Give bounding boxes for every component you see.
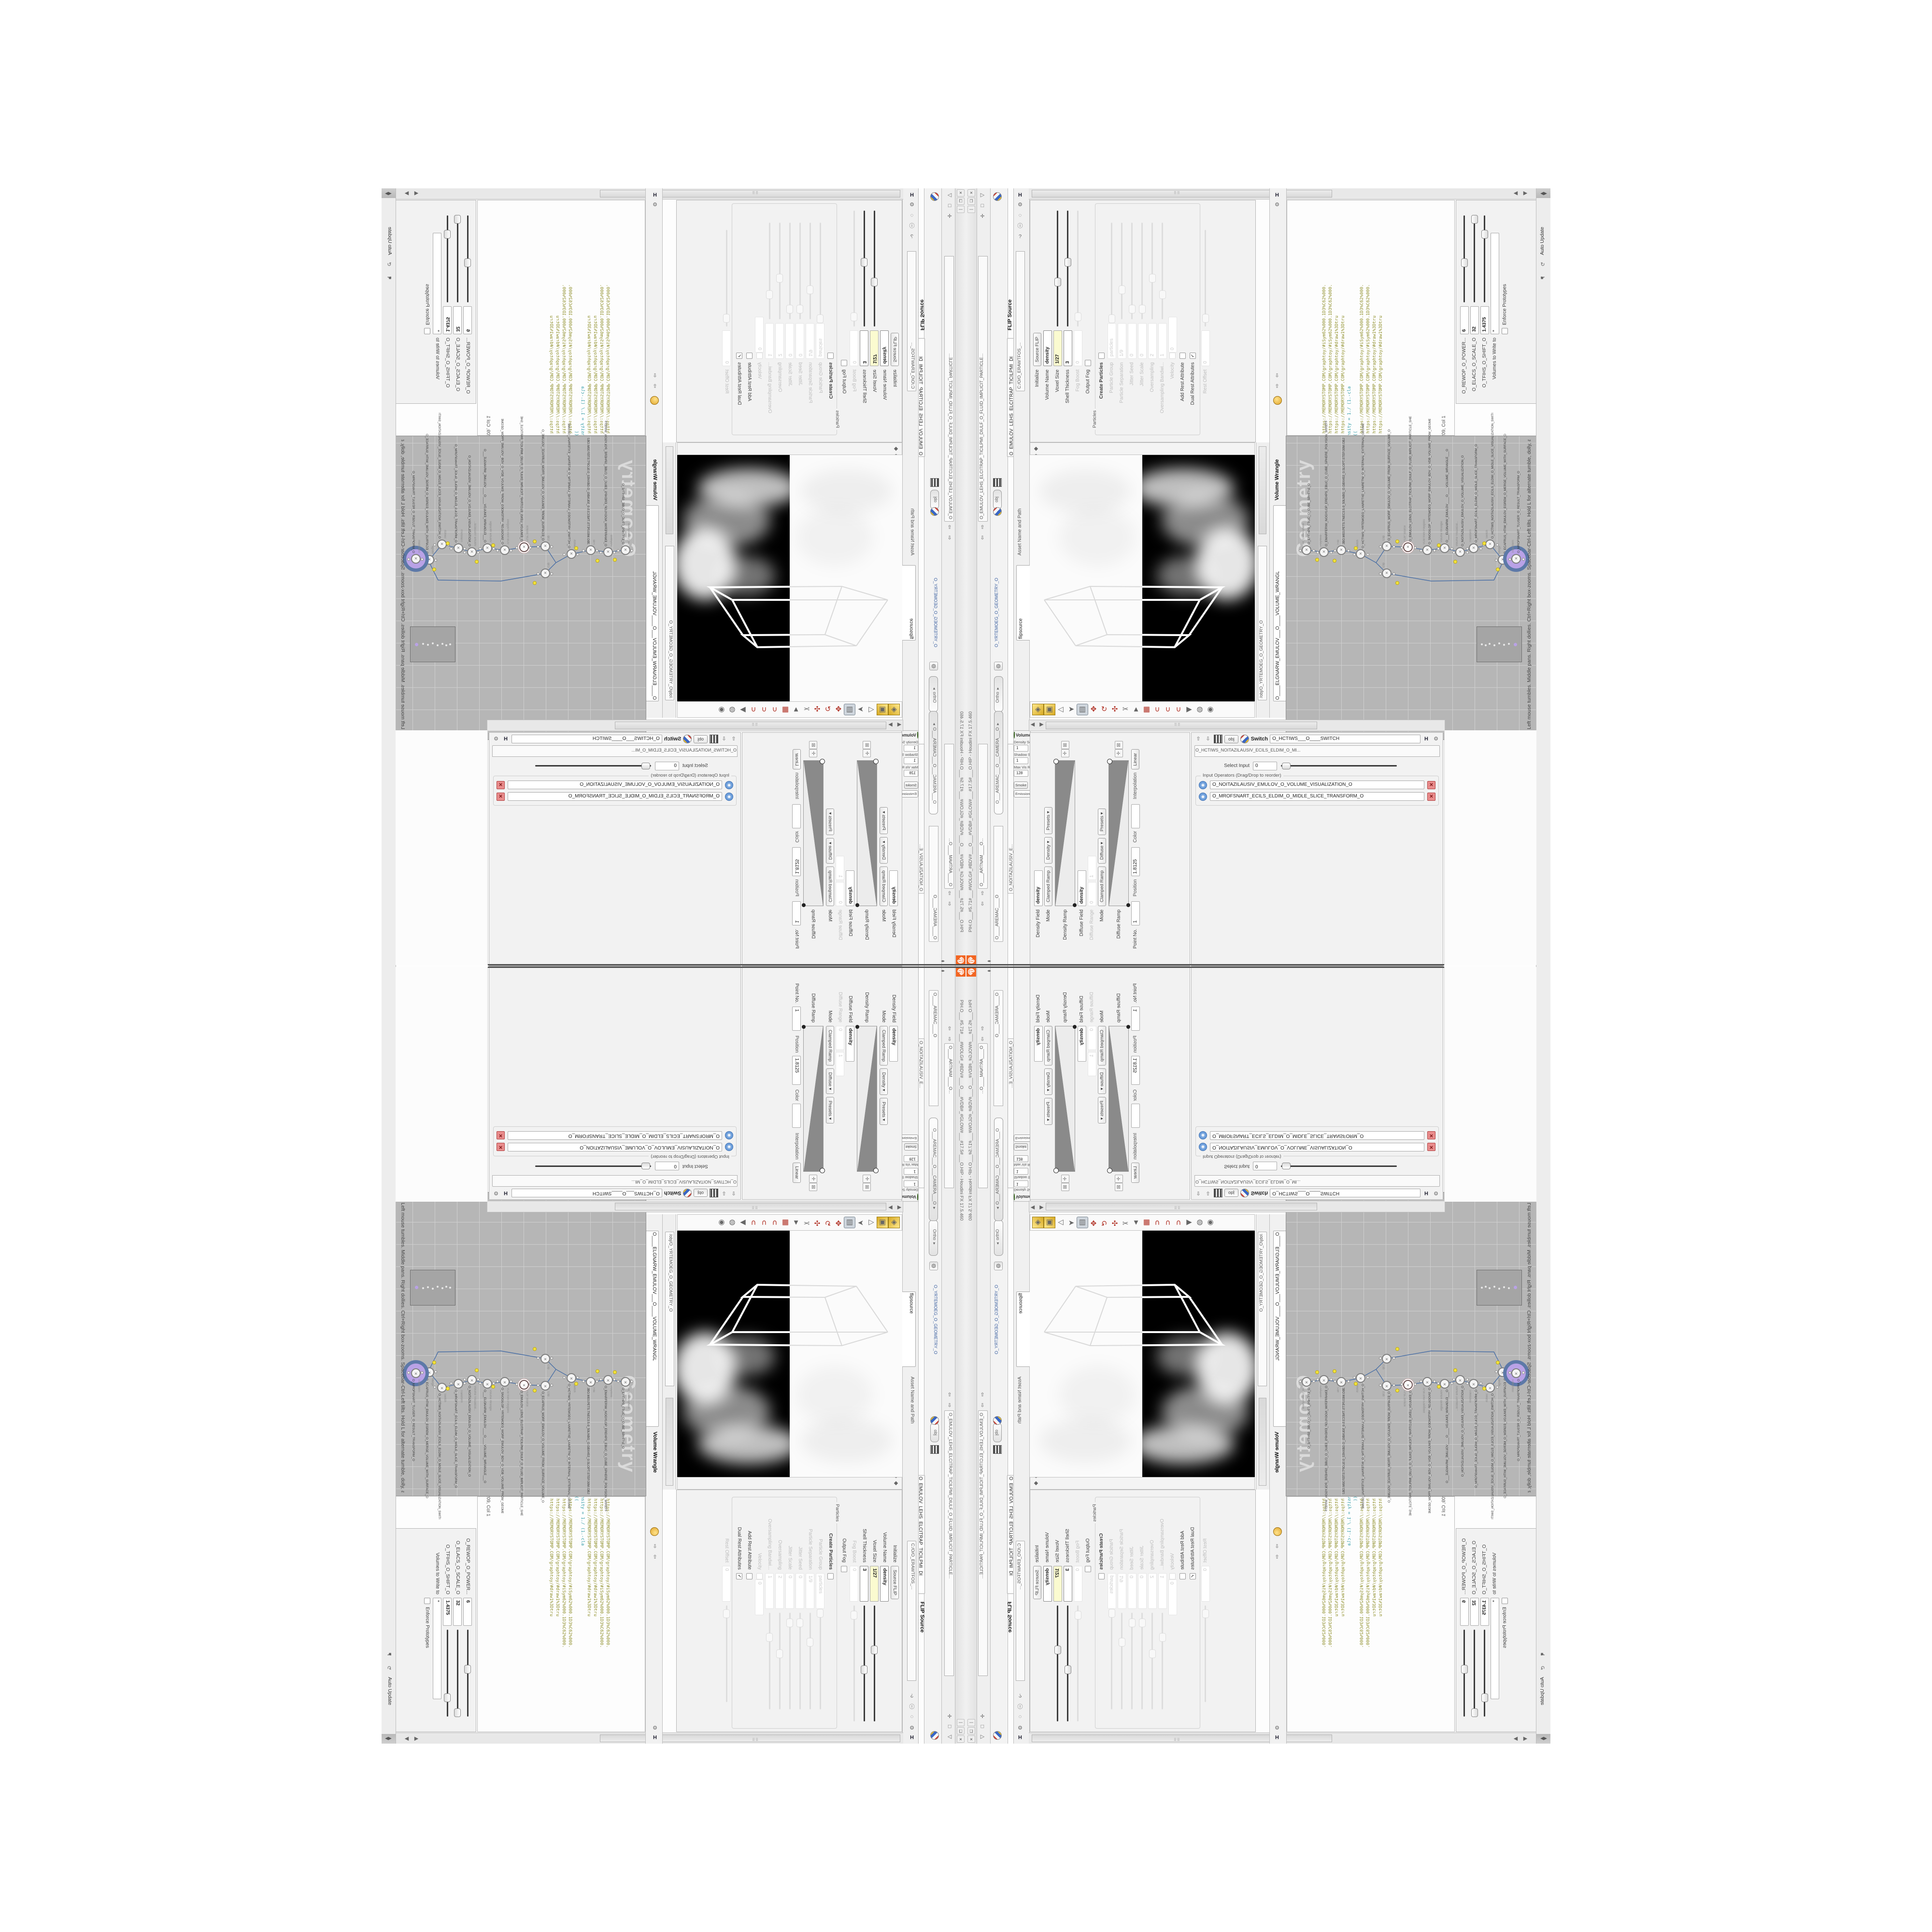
node-flag[interactable] xyxy=(533,540,537,543)
scroll-right-icon[interactable]: ▶ xyxy=(403,1735,411,1743)
interpolation-menu[interactable]: Linear xyxy=(1131,749,1139,769)
window-titlebar[interactable]: ✕ ❐ — PIH.O___#5.71#___#WOLG#_#BDV#___O_… xyxy=(955,188,966,966)
nav-up-icon[interactable]: ⇧ xyxy=(946,524,953,531)
network-editor[interactable]: Geometry O_EREHPS_EBUC_O_CUBE_SPHERE_O xyxy=(1286,436,1537,740)
translate-tool-icon[interactable]: ✥ xyxy=(1088,1217,1099,1228)
output-fog-checkbox[interactable] xyxy=(1085,1566,1091,1572)
pane-split-icon[interactable]: ✛ xyxy=(979,213,986,220)
breadcrumb-path[interactable]: O_YRTEMOEG_O_GEOMETRY_O xyxy=(933,1285,938,1410)
node-flag[interactable] xyxy=(1437,1385,1441,1389)
scroll-right-icon[interactable]: ▶ xyxy=(1038,1204,1045,1211)
magnet-a-icon[interactable]: ∪ xyxy=(1152,704,1163,715)
node-flag[interactable] xyxy=(1333,559,1336,563)
nav-up-icon[interactable]: ⇧ xyxy=(1273,1542,1281,1549)
density-menu[interactable]: Density ▾ xyxy=(880,837,888,864)
magnet-b-icon[interactable]: ∪ xyxy=(1163,704,1173,715)
initialize-menu[interactable]: Source FLIP xyxy=(891,1566,899,1599)
auto-update-menu[interactable]: Auto Update xyxy=(1539,1677,1545,1730)
output-fog-checkbox[interactable] xyxy=(1085,360,1091,366)
position-field[interactable]: 1.8125 xyxy=(793,847,801,876)
add-ramp-point-icon[interactable]: ✛ xyxy=(1115,1175,1123,1183)
pane-corner-arrows-icon[interactable]: ◀▶ xyxy=(382,1734,396,1744)
tab-flip-node[interactable]: O_EMULOV_LEHS_ELCITRAP_TICILPMI_DIULF_O_… xyxy=(978,1410,988,1676)
breadcrumb-obj[interactable]: obj xyxy=(694,1189,708,1197)
presets-menu[interactable]: Presets ▾ xyxy=(826,809,834,836)
breadcrumb-obj[interactable]: obj xyxy=(930,490,939,509)
translate-tool-icon[interactable]: ✥ xyxy=(1088,704,1099,715)
remove-input-icon[interactable]: ✕ xyxy=(1427,1132,1435,1140)
density-field[interactable]: density xyxy=(890,1026,898,1062)
breadcrumb-obj[interactable]: obj xyxy=(993,490,1002,509)
density-ramp-editor[interactable] xyxy=(857,1026,877,1172)
houdini-h-icon[interactable]: H xyxy=(1422,735,1430,743)
node-flag[interactable] xyxy=(491,1385,495,1389)
vex-code-editor[interactable]: /// https://MEMORYSTOMP.COM/graphtoy/#iS… xyxy=(1287,200,1455,436)
vex-code-editor[interactable]: /// https://MEMORYSTOMP.COM/graphtoy/#iS… xyxy=(1287,1496,1455,1732)
gear-icon[interactable]: ⚙ xyxy=(492,1189,500,1197)
pane-maximize-icon[interactable]: □ xyxy=(946,202,953,210)
node-flag[interactable] xyxy=(596,1369,599,1373)
remove-input-icon[interactable]: ✕ xyxy=(497,781,505,789)
node-flag[interactable] xyxy=(613,1370,617,1374)
volumes-field[interactable]: * xyxy=(433,233,442,334)
scroll-left-icon[interactable]: ◀ xyxy=(896,1204,903,1211)
vex-code-editor[interactable]: /// https://MEMORYSTOMP.COM/graphtoy/#iS… xyxy=(477,1496,645,1732)
row-checkbox[interactable] xyxy=(1169,1573,1176,1579)
gear-icon[interactable]: ⚙ xyxy=(1273,201,1281,209)
delete-ramp-point-icon[interactable]: ⊠ xyxy=(810,741,818,749)
add-ramp-point-icon[interactable]: ✛ xyxy=(1061,749,1069,757)
fog-boost-slider[interactable] xyxy=(853,1605,855,1721)
delete-ramp-point-icon[interactable]: ⊠ xyxy=(1115,741,1123,749)
interpolation-menu[interactable]: Linear xyxy=(793,749,801,769)
breadcrumb-obj[interactable]: obj xyxy=(1224,1189,1238,1197)
reorder-handle-icon[interactable]: ◉ xyxy=(1199,1143,1207,1151)
fill-bucket-icon[interactable]: ▣ xyxy=(1044,704,1055,715)
close-window-icon[interactable]: ✕ xyxy=(957,1735,965,1743)
select-cursor-icon[interactable]: ➤ xyxy=(1066,704,1077,715)
network-minimap[interactable] xyxy=(410,626,455,662)
translate-tool-icon[interactable]: ✥ xyxy=(833,1217,844,1228)
camera-selector[interactable]: O___AREMAC___O___CAMERA___O ▾ xyxy=(929,711,938,814)
window-titlebar[interactable]: ✕ ❐ — PIH.O___#5.71#___#WOLG#_#BDV#___O_… xyxy=(966,188,977,966)
scroll-left-icon[interactable]: ◀ xyxy=(1512,189,1520,197)
nav-up-icon[interactable]: ⇧ xyxy=(651,1542,659,1549)
scroll-left-icon[interactable]: ◀ xyxy=(896,721,903,728)
switch-node-name-field[interactable]: O_HCTIWS___O____SWITCH xyxy=(1270,735,1421,743)
breadcrumb-obj[interactable]: obj xyxy=(1224,735,1238,743)
houdini-h-icon[interactable]: H xyxy=(908,191,916,199)
manual-cook-icon[interactable]: ☛ xyxy=(385,1650,393,1658)
point-no-field[interactable]: 1 xyxy=(793,1007,801,1031)
add-ramp-point-icon[interactable]: ✛ xyxy=(1115,749,1123,757)
presets-menu[interactable]: Presets ▾ xyxy=(1098,809,1106,836)
manual-cook-icon[interactable]: ☛ xyxy=(1539,274,1547,282)
scroll-right-icon[interactable]: ▶ xyxy=(1521,189,1529,197)
diffuse-field[interactable]: density xyxy=(846,870,855,906)
cut-tool-icon[interactable]: ✂ xyxy=(1120,704,1131,715)
diffuse-ramp-editor[interactable] xyxy=(1108,1026,1129,1172)
magnifier-icon[interactable]: ◌ xyxy=(908,1713,916,1720)
magnet-b-icon[interactable]: ∪ xyxy=(759,1217,769,1228)
breadcrumb-path[interactable]: O_YRTEMOEG_O_GEOMETRY_O xyxy=(994,522,999,647)
density-menu[interactable]: Density ▾ xyxy=(1044,837,1052,864)
enforce-prototypes-checkbox[interactable] xyxy=(1502,328,1508,334)
shell-thickness-slider[interactable] xyxy=(1067,211,1068,327)
camera-lock-icon[interactable]: ▥ xyxy=(844,1217,855,1228)
play-icon[interactable]: ▶ xyxy=(738,704,748,715)
magnet-a-icon[interactable]: ∪ xyxy=(769,704,780,715)
shell-thickness-field[interactable]: 3 xyxy=(860,1566,869,1602)
tab-software-path[interactable]: C:/O/O_ERAWTFOS_... xyxy=(1016,251,1025,391)
node-flag[interactable] xyxy=(574,546,578,550)
nav-down-icon[interactable]: ⇩ xyxy=(979,900,986,908)
add-ramp-point-icon[interactable]: ✛ xyxy=(810,1175,818,1183)
rotate-tool-icon[interactable]: ↻ xyxy=(823,1217,833,1228)
rotate-tool-icon[interactable]: ↻ xyxy=(1099,1217,1109,1228)
houdini-h-icon[interactable]: H xyxy=(502,1189,510,1197)
rgb-axis-icon[interactable]: ▲ xyxy=(791,1217,801,1228)
diamond-icon[interactable]: ◆ xyxy=(892,445,900,453)
display-mode-icon[interactable]: ◍ xyxy=(994,1262,1003,1270)
reorder-handle-icon[interactable]: ◉ xyxy=(725,793,733,801)
display-mode-icon[interactable]: ◍ xyxy=(929,1262,938,1270)
play-icon[interactable]: ▶ xyxy=(738,1217,748,1228)
back-arrow-icon[interactable]: ◁ xyxy=(866,704,877,715)
select-cursor-icon[interactable]: ➤ xyxy=(1066,1217,1077,1228)
node-flag[interactable] xyxy=(533,1347,537,1351)
breadcrumb-obj[interactable]: obj xyxy=(930,1423,939,1442)
maximize-window-icon[interactable]: ❐ xyxy=(967,198,975,205)
diffuse-menu[interactable]: Diffuse ▾ xyxy=(1098,1068,1106,1094)
row-checkbox[interactable] xyxy=(1179,353,1186,359)
camera-lock-icon[interactable]: ▥ xyxy=(1077,704,1088,715)
density-field[interactable]: density xyxy=(890,870,898,906)
scale-tool-icon[interactable]: ✣ xyxy=(812,1217,823,1228)
nav-down-icon[interactable]: ⇩ xyxy=(946,534,953,542)
pane-corner-arrows-icon[interactable]: ◀▶ xyxy=(1536,1734,1550,1744)
houdini-h-icon[interactable]: H xyxy=(651,191,659,199)
row-checkbox[interactable] xyxy=(746,353,753,359)
node-flag[interactable] xyxy=(1437,543,1441,547)
volume-name-field[interactable]: density xyxy=(881,330,889,366)
tab-software-path[interactable]: C:/O/O_ERAWTFOS_... xyxy=(907,251,916,391)
info-icon[interactable]: ⓘ xyxy=(1016,1702,1024,1710)
auto-update-menu[interactable]: Auto Update xyxy=(1539,202,1545,255)
minimize-window-icon[interactable]: — xyxy=(967,1719,975,1726)
minimize-window-icon[interactable]: — xyxy=(967,206,975,213)
rgb-axis-icon[interactable]: ▲ xyxy=(1131,704,1141,715)
add-ramp-point-icon[interactable]: ✛ xyxy=(863,1175,871,1183)
fog-boost-field[interactable]: 0 xyxy=(850,330,859,366)
row-checkbox[interactable] xyxy=(756,1573,763,1579)
delete-ramp-point-icon[interactable]: ⊠ xyxy=(1115,1183,1123,1191)
volumes-field[interactable]: * xyxy=(1491,1598,1499,1699)
breadcrumb-obj[interactable]: obj xyxy=(694,735,708,743)
back-arrow-icon[interactable]: ◁ xyxy=(866,1217,877,1228)
row-checkbox[interactable] xyxy=(827,353,834,359)
delete-ramp-point-icon[interactable]: ⊠ xyxy=(1061,1183,1069,1191)
node-flag[interactable] xyxy=(1354,1382,1358,1386)
enforce-prototypes-checkbox[interactable] xyxy=(424,328,430,334)
fog-boost-slider[interactable] xyxy=(1077,211,1079,327)
tab-emission[interactable]: Emission xyxy=(1014,790,1031,797)
tab-camera-pane[interactable]: O____AREMAC____O xyxy=(994,826,1003,942)
voxel-size-slider[interactable] xyxy=(874,1605,875,1721)
fog-boost-slider[interactable] xyxy=(1077,1605,1079,1721)
color-swatch[interactable] xyxy=(1131,804,1140,828)
interpolation-menu[interactable]: Linear xyxy=(1131,1163,1139,1183)
diffuse-ramp-editor[interactable] xyxy=(1108,760,1129,906)
scale-tool-icon[interactable]: ✣ xyxy=(1109,1217,1120,1228)
scroll-left-icon[interactable]: ◀ xyxy=(1029,721,1036,728)
presets-menu[interactable]: Presets ▾ xyxy=(880,807,888,834)
mode-menu[interactable]: Clamped Ramp xyxy=(1044,867,1052,906)
ortho-selector[interactable]: Ortho ▾ xyxy=(929,676,938,712)
node-flag[interactable] xyxy=(475,1368,479,1372)
houdini-h-icon[interactable]: H xyxy=(502,735,510,743)
reorder-handle-icon[interactable]: ◉ xyxy=(1199,1132,1207,1140)
density-ramp-editor[interactable] xyxy=(857,760,877,906)
fill-bucket-icon[interactable]: ▣ xyxy=(877,1217,888,1228)
select-cursor-icon[interactable]: ➤ xyxy=(855,704,866,715)
pane-split-icon[interactable]: ✛ xyxy=(979,1712,986,1719)
ortho-selector[interactable]: Ortho ▾ xyxy=(994,676,1003,712)
shell-thickness-field[interactable]: 3 xyxy=(1064,330,1072,366)
tab-network-path[interactable]: /obj/O_YRTEMOEG_O_GEOMETRY_O xyxy=(665,546,674,700)
select-input-slider[interactable] xyxy=(535,1165,651,1167)
position-field[interactable]: 1.8125 xyxy=(1131,847,1140,876)
tab-switch-node[interactable]: O_HCTIWS_NOITAZILAUSIV_ECILS_ELDIM_O_MI.… xyxy=(492,1175,738,1187)
network-editor[interactable]: Geometry O_EREHPS_EBUC_O_CUBE_SPHERE_O xyxy=(395,436,646,740)
radial-menu-icon[interactable] xyxy=(993,1731,1002,1740)
rotate-tool-icon[interactable]: ↻ xyxy=(1099,704,1109,715)
gear-icon[interactable]: ⚙ xyxy=(908,201,916,209)
translate-tool-icon[interactable]: ✥ xyxy=(833,704,844,715)
enforce-prototypes-checkbox[interactable] xyxy=(424,1598,430,1604)
tab-emission[interactable]: Emission xyxy=(901,790,918,797)
network-minimap[interactable] xyxy=(1477,1270,1522,1306)
select-input-slider[interactable] xyxy=(1281,1165,1397,1167)
back-arrow-icon[interactable]: ◁ xyxy=(1055,704,1066,715)
node-flag[interactable] xyxy=(1315,558,1319,562)
shell-thickness-field[interactable]: 3 xyxy=(1064,1566,1072,1602)
nav-up-icon[interactable]: ⇧ xyxy=(651,383,659,390)
render-sphere-icon[interactable]: ◉ xyxy=(716,704,727,715)
magnifier-icon[interactable]: ◌ xyxy=(908,212,916,219)
layout-diamond-icon[interactable]: ◈ xyxy=(888,704,900,715)
window-titlebar[interactable]: ✕ ❐ — PIH.O___#5.71#___#WOLG#_#BDV#___O_… xyxy=(955,966,966,1744)
pane-corner-arrows-icon[interactable]: ◀▶ xyxy=(1536,188,1550,198)
delete-ramp-point-icon[interactable]: ⊠ xyxy=(1061,741,1069,749)
magnet-c-icon[interactable]: ∪ xyxy=(748,1217,759,1228)
nav-up-icon[interactable]: ⇧ xyxy=(1194,735,1202,743)
select-input-field[interactable]: 0 xyxy=(1253,762,1277,770)
presets-menu[interactable]: Presets ▾ xyxy=(1044,807,1052,834)
scroll-left-icon[interactable]: ◂▸ xyxy=(939,957,947,965)
scale-tool-icon[interactable]: ✣ xyxy=(812,704,823,715)
pane-expand-icon[interactable]: ▷ xyxy=(979,1733,986,1741)
row-checkbox[interactable] xyxy=(1169,353,1176,359)
camera-lock-icon[interactable]: ▥ xyxy=(1077,1217,1088,1228)
diffuse-menu[interactable]: Diffuse ▾ xyxy=(826,838,834,864)
node-flag[interactable] xyxy=(1453,1368,1457,1372)
layout-diamond-icon[interactable]: ◈ xyxy=(888,1217,900,1228)
maximize-window-icon[interactable]: ❐ xyxy=(967,1727,975,1734)
output-fog-checkbox[interactable] xyxy=(841,360,847,366)
scroll-right-icon[interactable]: ▶ xyxy=(403,189,411,197)
gear-icon[interactable]: ⚙ xyxy=(651,1723,659,1731)
diamond-icon[interactable]: ◆ xyxy=(1032,1479,1040,1487)
interpolation-menu[interactable]: Linear xyxy=(793,1163,801,1183)
tab-mantra-pane[interactable]: O____ARTNAM____O... xyxy=(944,744,954,889)
scroll-left-icon[interactable]: ◀ xyxy=(412,189,420,197)
tab-mantra-pane[interactable]: O____ARTNAM____O... xyxy=(978,1043,988,1188)
refresh-icon[interactable]: ↻ xyxy=(1539,261,1547,269)
mode-menu[interactable]: Clamped Ramp xyxy=(826,867,834,906)
houdini-h-icon[interactable]: H xyxy=(651,1733,659,1741)
node-flag[interactable] xyxy=(1333,1369,1336,1373)
nav-up-icon[interactable]: ⇧ xyxy=(979,890,986,897)
presets-menu[interactable]: Presets ▾ xyxy=(1044,1098,1052,1125)
row-checkbox[interactable]: ✓ xyxy=(1190,353,1196,359)
mode-menu[interactable]: Clamped Ramp xyxy=(1098,1026,1106,1065)
render-sphere-icon[interactable]: ◉ xyxy=(716,1217,727,1228)
density-field[interactable]: density xyxy=(1034,1026,1043,1062)
tab-emission[interactable]: Emission xyxy=(1014,1135,1031,1142)
nav-up-icon[interactable]: ⇧ xyxy=(979,1035,986,1042)
voxel-size-field[interactable]: 1/27 xyxy=(870,330,879,366)
cut-tool-icon[interactable]: ✂ xyxy=(1120,1217,1131,1228)
magnet-c-icon[interactable]: ∪ xyxy=(1173,1217,1184,1228)
node-flag[interactable] xyxy=(574,1382,578,1386)
diffuse-menu[interactable]: Diffuse ▾ xyxy=(826,1068,834,1094)
radial-menu-icon[interactable] xyxy=(930,192,939,201)
density-ramp-editor[interactable] xyxy=(1055,1026,1075,1172)
volumes-field[interactable]: * xyxy=(433,1598,442,1699)
network-editor[interactable]: Geometry O_EREHPS_EBUC_O_CUBE_SPHERE_O xyxy=(1286,1192,1537,1496)
row-checkbox[interactable] xyxy=(1179,1573,1186,1579)
render-sphere-icon[interactable]: ◉ xyxy=(1205,1217,1216,1228)
color-swatch[interactable] xyxy=(793,804,801,828)
radial-menu-icon[interactable] xyxy=(930,1731,939,1740)
gear-icon[interactable]: ⚙ xyxy=(1016,201,1024,209)
volume-name-field[interactable]: density xyxy=(1043,330,1052,366)
info-icon[interactable]: ⓘ xyxy=(1016,222,1024,230)
diffuse-field[interactable]: density xyxy=(1078,870,1086,906)
scroll-left-icon[interactable]: ◀ xyxy=(1512,1735,1520,1743)
mode-menu[interactable]: Clamped Ramp xyxy=(1044,1026,1052,1065)
cut-tool-icon[interactable]: ✂ xyxy=(801,1217,812,1228)
bottom-scrollbar[interactable]: ◀ ▶ ⠿⠿ xyxy=(487,1201,903,1212)
layout-diamond-icon[interactable]: ◈ xyxy=(1032,1217,1044,1228)
nav-down-icon[interactable]: ⇩ xyxy=(979,534,986,542)
presets-menu[interactable]: Presets ▾ xyxy=(826,1097,834,1124)
play-icon[interactable]: ▶ xyxy=(1184,704,1194,715)
display-mode-icon[interactable]: ◍ xyxy=(929,662,938,670)
magnet-a-icon[interactable]: ∪ xyxy=(769,1217,780,1228)
reorder-handle-icon[interactable]: ◉ xyxy=(725,1132,733,1140)
row-checkbox[interactable] xyxy=(746,1573,753,1579)
tab-mantra-pane[interactable]: O____ARTNAM____O... xyxy=(978,744,988,889)
ortho-selector[interactable]: Ortho ▾ xyxy=(929,1220,938,1256)
rgb-axis-icon[interactable]: ▲ xyxy=(791,704,801,715)
scroll-left-icon[interactable]: ◀ xyxy=(412,1735,420,1743)
tab-switch-node[interactable]: O_HCTIWS_NOITAZILAUSIV_ECILS_ELDIM_O_MI.… xyxy=(492,745,738,757)
nav-down-icon[interactable]: ⇩ xyxy=(946,1390,953,1398)
gear-icon[interactable]: ⚙ xyxy=(1016,1723,1024,1731)
vex-code-editor[interactable]: /// https://MEMORYSTOMP.COM/graphtoy/#iS… xyxy=(477,200,645,436)
scroll-left-icon[interactable]: ◂▸ xyxy=(985,957,993,965)
info-icon[interactable]: ⓘ xyxy=(908,222,916,230)
delete-ramp-point-icon[interactable]: ⊠ xyxy=(810,1183,818,1191)
gear-icon[interactable]: ⚙ xyxy=(1432,735,1440,743)
nav-up-icon[interactable]: ⇧ xyxy=(979,1401,986,1408)
pane-split-icon[interactable]: ✛ xyxy=(946,213,953,220)
nav-down-icon[interactable]: ⇩ xyxy=(946,900,953,908)
nav-down-icon[interactable]: ⇩ xyxy=(979,1024,986,1032)
node-flag[interactable] xyxy=(1395,1389,1399,1392)
help-icon[interactable]: ? xyxy=(908,1691,916,1699)
delete-ramp-point-icon[interactable]: ⊠ xyxy=(863,741,871,749)
select-input-slider[interactable] xyxy=(535,765,651,767)
diffuse-field[interactable]: density xyxy=(1078,1026,1086,1062)
tab-network-path[interactable]: /obj/O_YRTEMOEG_O_GEOMETRY_O xyxy=(665,1232,674,1386)
nav-up-icon[interactable]: ⇧ xyxy=(730,735,738,743)
help-icon[interactable]: ? xyxy=(1016,233,1024,241)
nav-down-icon[interactable]: ⇩ xyxy=(979,1390,986,1398)
material-sphere-icon[interactable]: ◍ xyxy=(1194,704,1205,715)
tab-emission[interactable]: Emission xyxy=(901,1135,918,1142)
color-swatch[interactable] xyxy=(793,1104,801,1128)
presets-menu[interactable]: Presets ▾ xyxy=(1098,1097,1106,1124)
display-mode-icon[interactable]: ◍ xyxy=(994,662,1003,670)
density-menu[interactable]: Density ▾ xyxy=(880,1068,888,1095)
tab-camera-pane[interactable]: O____AREMAC____O xyxy=(994,990,1003,1106)
diffuse-field[interactable]: density xyxy=(846,1026,855,1062)
node-flag[interactable] xyxy=(1395,1347,1399,1351)
node-flag[interactable] xyxy=(596,559,599,563)
minimize-window-icon[interactable]: — xyxy=(957,206,965,213)
switch-node-name-field[interactable]: O_HCTIWS___O____SWITCH xyxy=(511,1189,662,1197)
tab-network-path[interactable]: /obj/O_YRTEMOEG_O_GEOMETRY_O xyxy=(1258,1232,1267,1386)
breadcrumb-obj[interactable]: obj xyxy=(993,1423,1002,1442)
nav-up-icon[interactable]: ⇧ xyxy=(946,1035,953,1042)
initialize-menu[interactable]: Source FLIP xyxy=(1033,333,1041,366)
voxel-size-slider[interactable] xyxy=(1057,1605,1058,1721)
maximize-window-icon[interactable]: ❐ xyxy=(957,198,965,205)
node-flag[interactable] xyxy=(432,1361,436,1364)
reorder-handle-icon[interactable]: ◉ xyxy=(725,781,733,789)
scroll-right-icon[interactable]: ▶ xyxy=(887,1204,894,1211)
pane-split-icon[interactable]: ✛ xyxy=(946,1712,953,1719)
select-input-field[interactable]: 0 xyxy=(655,762,679,770)
window-titlebar[interactable]: ✕ ❐ — PIH.O___#5.71#___#WOLG#_#BDV#___O_… xyxy=(966,966,977,1744)
tab-software-path[interactable]: C:/O/O_ERAWTFOS_... xyxy=(1016,1541,1025,1681)
node-flag[interactable] xyxy=(1395,581,1399,585)
node-flag[interactable] xyxy=(613,558,617,562)
select-input-slider[interactable] xyxy=(1281,765,1397,767)
nav-down-icon[interactable]: ⇩ xyxy=(720,1189,728,1197)
add-ramp-point-icon[interactable]: ✛ xyxy=(863,749,871,757)
snap-grid-icon[interactable]: ▦ xyxy=(780,704,791,715)
voxel-size-field[interactable]: 1/27 xyxy=(1053,1566,1062,1602)
close-window-icon[interactable]: ✕ xyxy=(957,189,965,197)
magnet-c-icon[interactable]: ∪ xyxy=(748,704,759,715)
pane-maximize-icon[interactable]: □ xyxy=(979,202,986,210)
presets-menu[interactable]: Presets ▾ xyxy=(880,1098,888,1125)
position-field[interactable]: 1.8125 xyxy=(1131,1056,1140,1085)
